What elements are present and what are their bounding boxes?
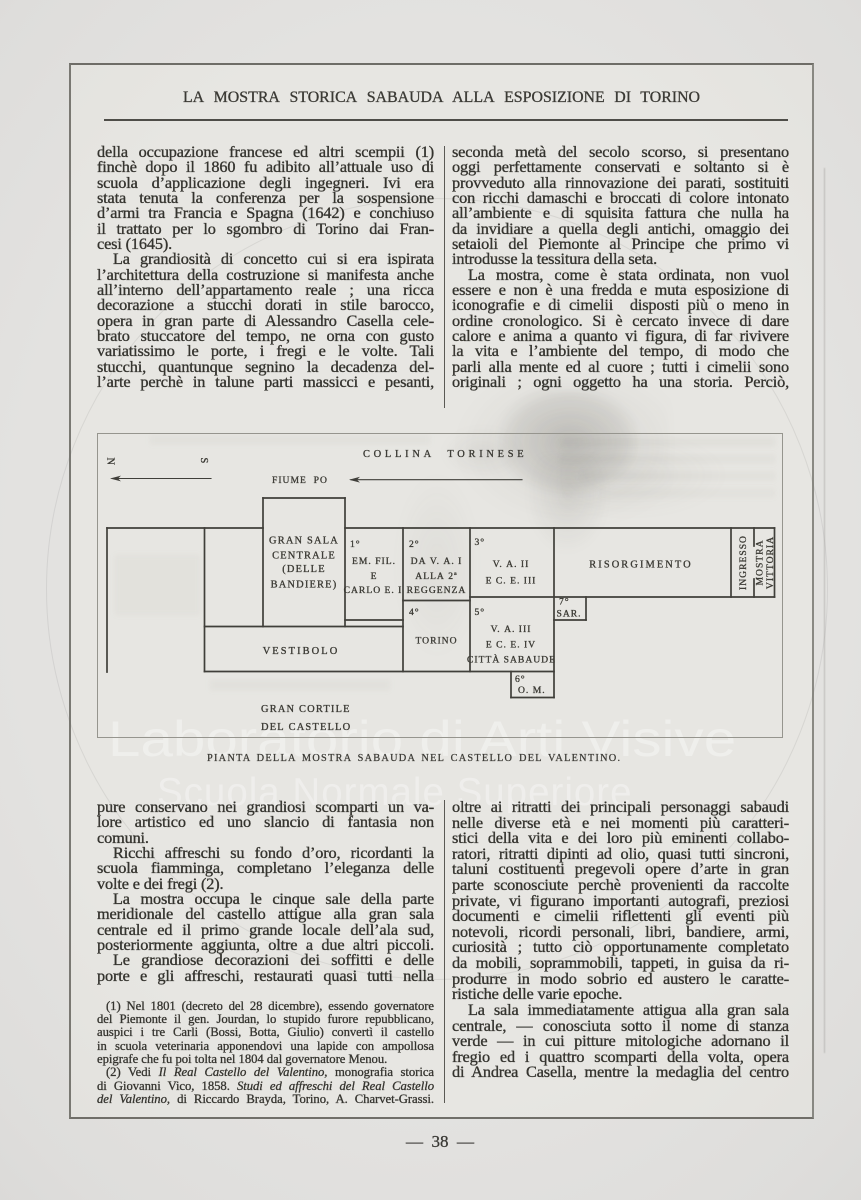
svg-text:MOSTRA: MOSTRA [755, 540, 766, 586]
svg-text:S: S [198, 458, 209, 465]
svg-text:RISORGIMENTO: RISORGIMENTO [589, 560, 693, 571]
svg-text:O. M.: O. M. [518, 685, 546, 696]
svg-text:1°: 1° [350, 539, 361, 550]
svg-text:VESTIBOLO: VESTIBOLO [263, 646, 340, 657]
svg-text:E C. E. III: E C. E. III [486, 576, 537, 587]
svg-text:BANDIERE): BANDIERE) [271, 580, 338, 591]
svg-text:3°: 3° [475, 537, 486, 548]
svg-text:TORINO: TORINO [415, 636, 457, 647]
svg-text:E C. E. IV: E C. E. IV [486, 640, 536, 651]
svg-text:2°: 2° [409, 539, 420, 550]
svg-text:FIUME PO: FIUME PO [272, 475, 328, 486]
svg-text:GRAN CORTILE: GRAN CORTILE [261, 704, 351, 715]
svg-text:5°: 5° [475, 607, 486, 618]
svg-text:6°: 6° [515, 674, 526, 685]
svg-text:EM. FIL.: EM. FIL. [352, 556, 396, 567]
svg-text:CITTÀ SABAUDE: CITTÀ SABAUDE [467, 654, 556, 666]
svg-text:ALLA 2ª: ALLA 2ª [415, 571, 457, 582]
svg-text:(DELLE: (DELLE [282, 564, 326, 575]
svg-text:INGRESSO: INGRESSO [738, 535, 749, 590]
svg-text:GRAN SALA: GRAN SALA [269, 536, 339, 547]
svg-text:DA V. A. I: DA V. A. I [411, 556, 463, 567]
svg-text:DEL CASTELLO: DEL CASTELLO [261, 722, 351, 733]
svg-text:4°: 4° [409, 607, 420, 618]
svg-text:CENTRALE: CENTRALE [272, 551, 336, 562]
svg-text:N: N [105, 458, 116, 467]
svg-text:E: E [371, 571, 378, 582]
svg-text:REGGENZA: REGGENZA [407, 585, 467, 596]
svg-text:CARLO E. I: CARLO E. I [344, 585, 403, 596]
svg-text:V. A. III: V. A. III [491, 624, 532, 635]
svg-text:SAR.: SAR. [557, 609, 582, 620]
svg-text:7°: 7° [559, 597, 570, 608]
svg-text:V. A. II: V. A. II [493, 559, 530, 570]
svg-text:COLLINA TORINESE: COLLINA TORINESE [363, 449, 527, 460]
